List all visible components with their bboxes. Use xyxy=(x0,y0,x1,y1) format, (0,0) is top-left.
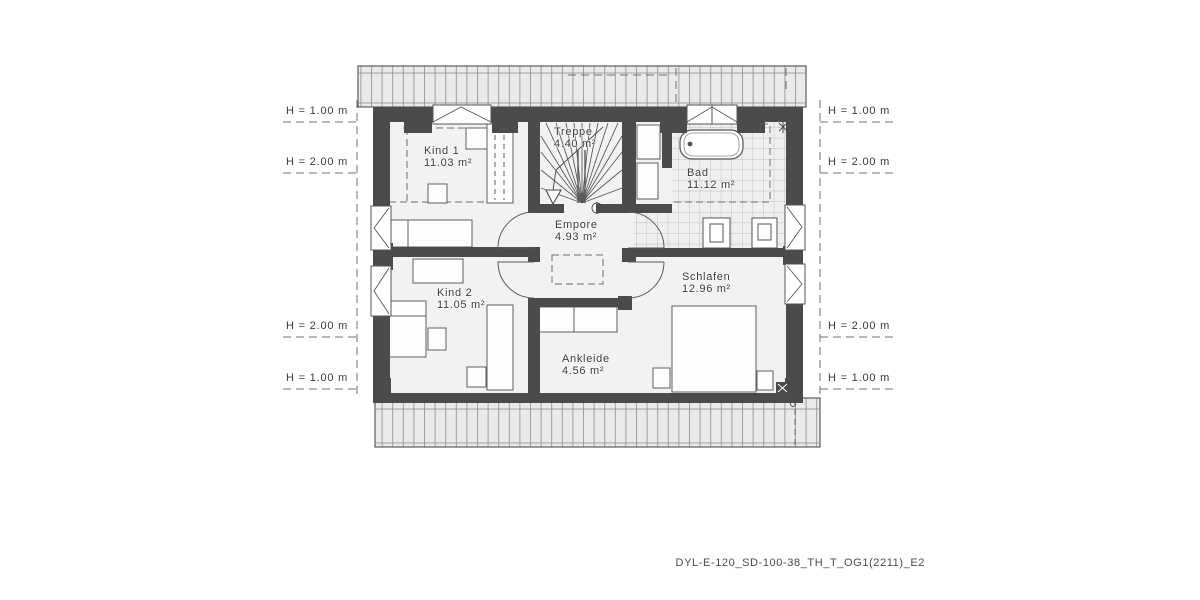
height-mark-right-top-2m: H = 2.00 m xyxy=(828,156,890,168)
window-bad-right xyxy=(785,205,805,250)
floor-plan-drawing xyxy=(0,0,1200,600)
side-table-kind2 xyxy=(467,367,486,387)
window-schlafen-right xyxy=(785,264,805,304)
room-name: Treppe xyxy=(554,126,596,138)
bed-kind2 xyxy=(389,301,426,357)
room-name: Kind 1 xyxy=(424,145,472,157)
outlet-symbol-schlafen xyxy=(776,382,789,394)
toilet xyxy=(703,218,730,248)
room-area: 4.56 m² xyxy=(562,365,610,377)
height-mark-right-top-1m: H = 1.00 m xyxy=(828,105,890,117)
height-mark-left-bottom-2m: H = 2.00 m xyxy=(286,320,348,332)
floor-plan-page: Kind 1 11.03 m² Treppe 4.40 m² Bad 11.12… xyxy=(0,0,1200,600)
washbasin xyxy=(752,218,777,248)
roof-overhang-top xyxy=(358,66,806,107)
roof-overhang-bottom xyxy=(375,398,820,447)
room-area: 4.93 m² xyxy=(555,231,598,243)
room-label-empore: Empore 4.93 m² xyxy=(555,219,598,243)
window-kind1-left xyxy=(371,206,391,250)
height-mark-left-bottom-1m: H = 1.00 m xyxy=(286,372,348,384)
sideboard-ankleide xyxy=(530,307,617,332)
room-label-bad: Bad 11.12 m² xyxy=(687,167,735,191)
nightstand-left xyxy=(653,368,670,388)
height-mark-right-bottom-1m: H = 1.00 m xyxy=(828,372,890,384)
room-name: Empore xyxy=(555,219,598,231)
double-bed-schlafen xyxy=(672,306,756,392)
drawing-code: DYL-E-120_SD-100-38_TH_T_OG1(2211)_E2 xyxy=(640,557,925,569)
desk-kind2 xyxy=(413,259,463,283)
room-name: Bad xyxy=(687,167,735,179)
side-table-kind1 xyxy=(428,184,447,203)
room-label-kind2: Kind 2 11.05 m² xyxy=(437,287,485,311)
window-bad-top xyxy=(687,105,737,124)
bathtub xyxy=(680,130,743,159)
closet-niche xyxy=(634,122,672,204)
window-kind2-left xyxy=(371,266,391,316)
room-area: 11.05 m² xyxy=(437,299,485,311)
wardrobe-kind1 xyxy=(487,123,513,203)
room-area: 11.03 m² xyxy=(424,157,472,169)
room-label-schlafen: Schlafen 12.96 m² xyxy=(682,271,731,295)
room-label-treppe: Treppe 4.40 m² xyxy=(554,126,596,150)
bed-kind1 xyxy=(389,220,472,247)
room-name: Ankleide xyxy=(562,353,610,365)
room-name: Schlafen xyxy=(682,271,731,283)
room-area: 12.96 m² xyxy=(682,283,731,295)
room-label-ankleide: Ankleide 4.56 m² xyxy=(562,353,610,377)
wardrobe-kind2 xyxy=(487,305,513,390)
room-label-kind1: Kind 1 11.03 m² xyxy=(424,145,472,169)
height-mark-right-bottom-2m: H = 2.00 m xyxy=(828,320,890,332)
height-mark-left-top-1m: H = 1.00 m xyxy=(286,105,348,117)
room-area: 4.40 m² xyxy=(554,138,596,150)
window-kind1-top xyxy=(433,105,491,124)
nightstand-right xyxy=(757,371,773,390)
height-mark-left-top-2m: H = 2.00 m xyxy=(286,156,348,168)
room-area: 11.12 m² xyxy=(687,179,735,191)
chair-kind2 xyxy=(428,328,446,350)
room-name: Kind 2 xyxy=(437,287,485,299)
